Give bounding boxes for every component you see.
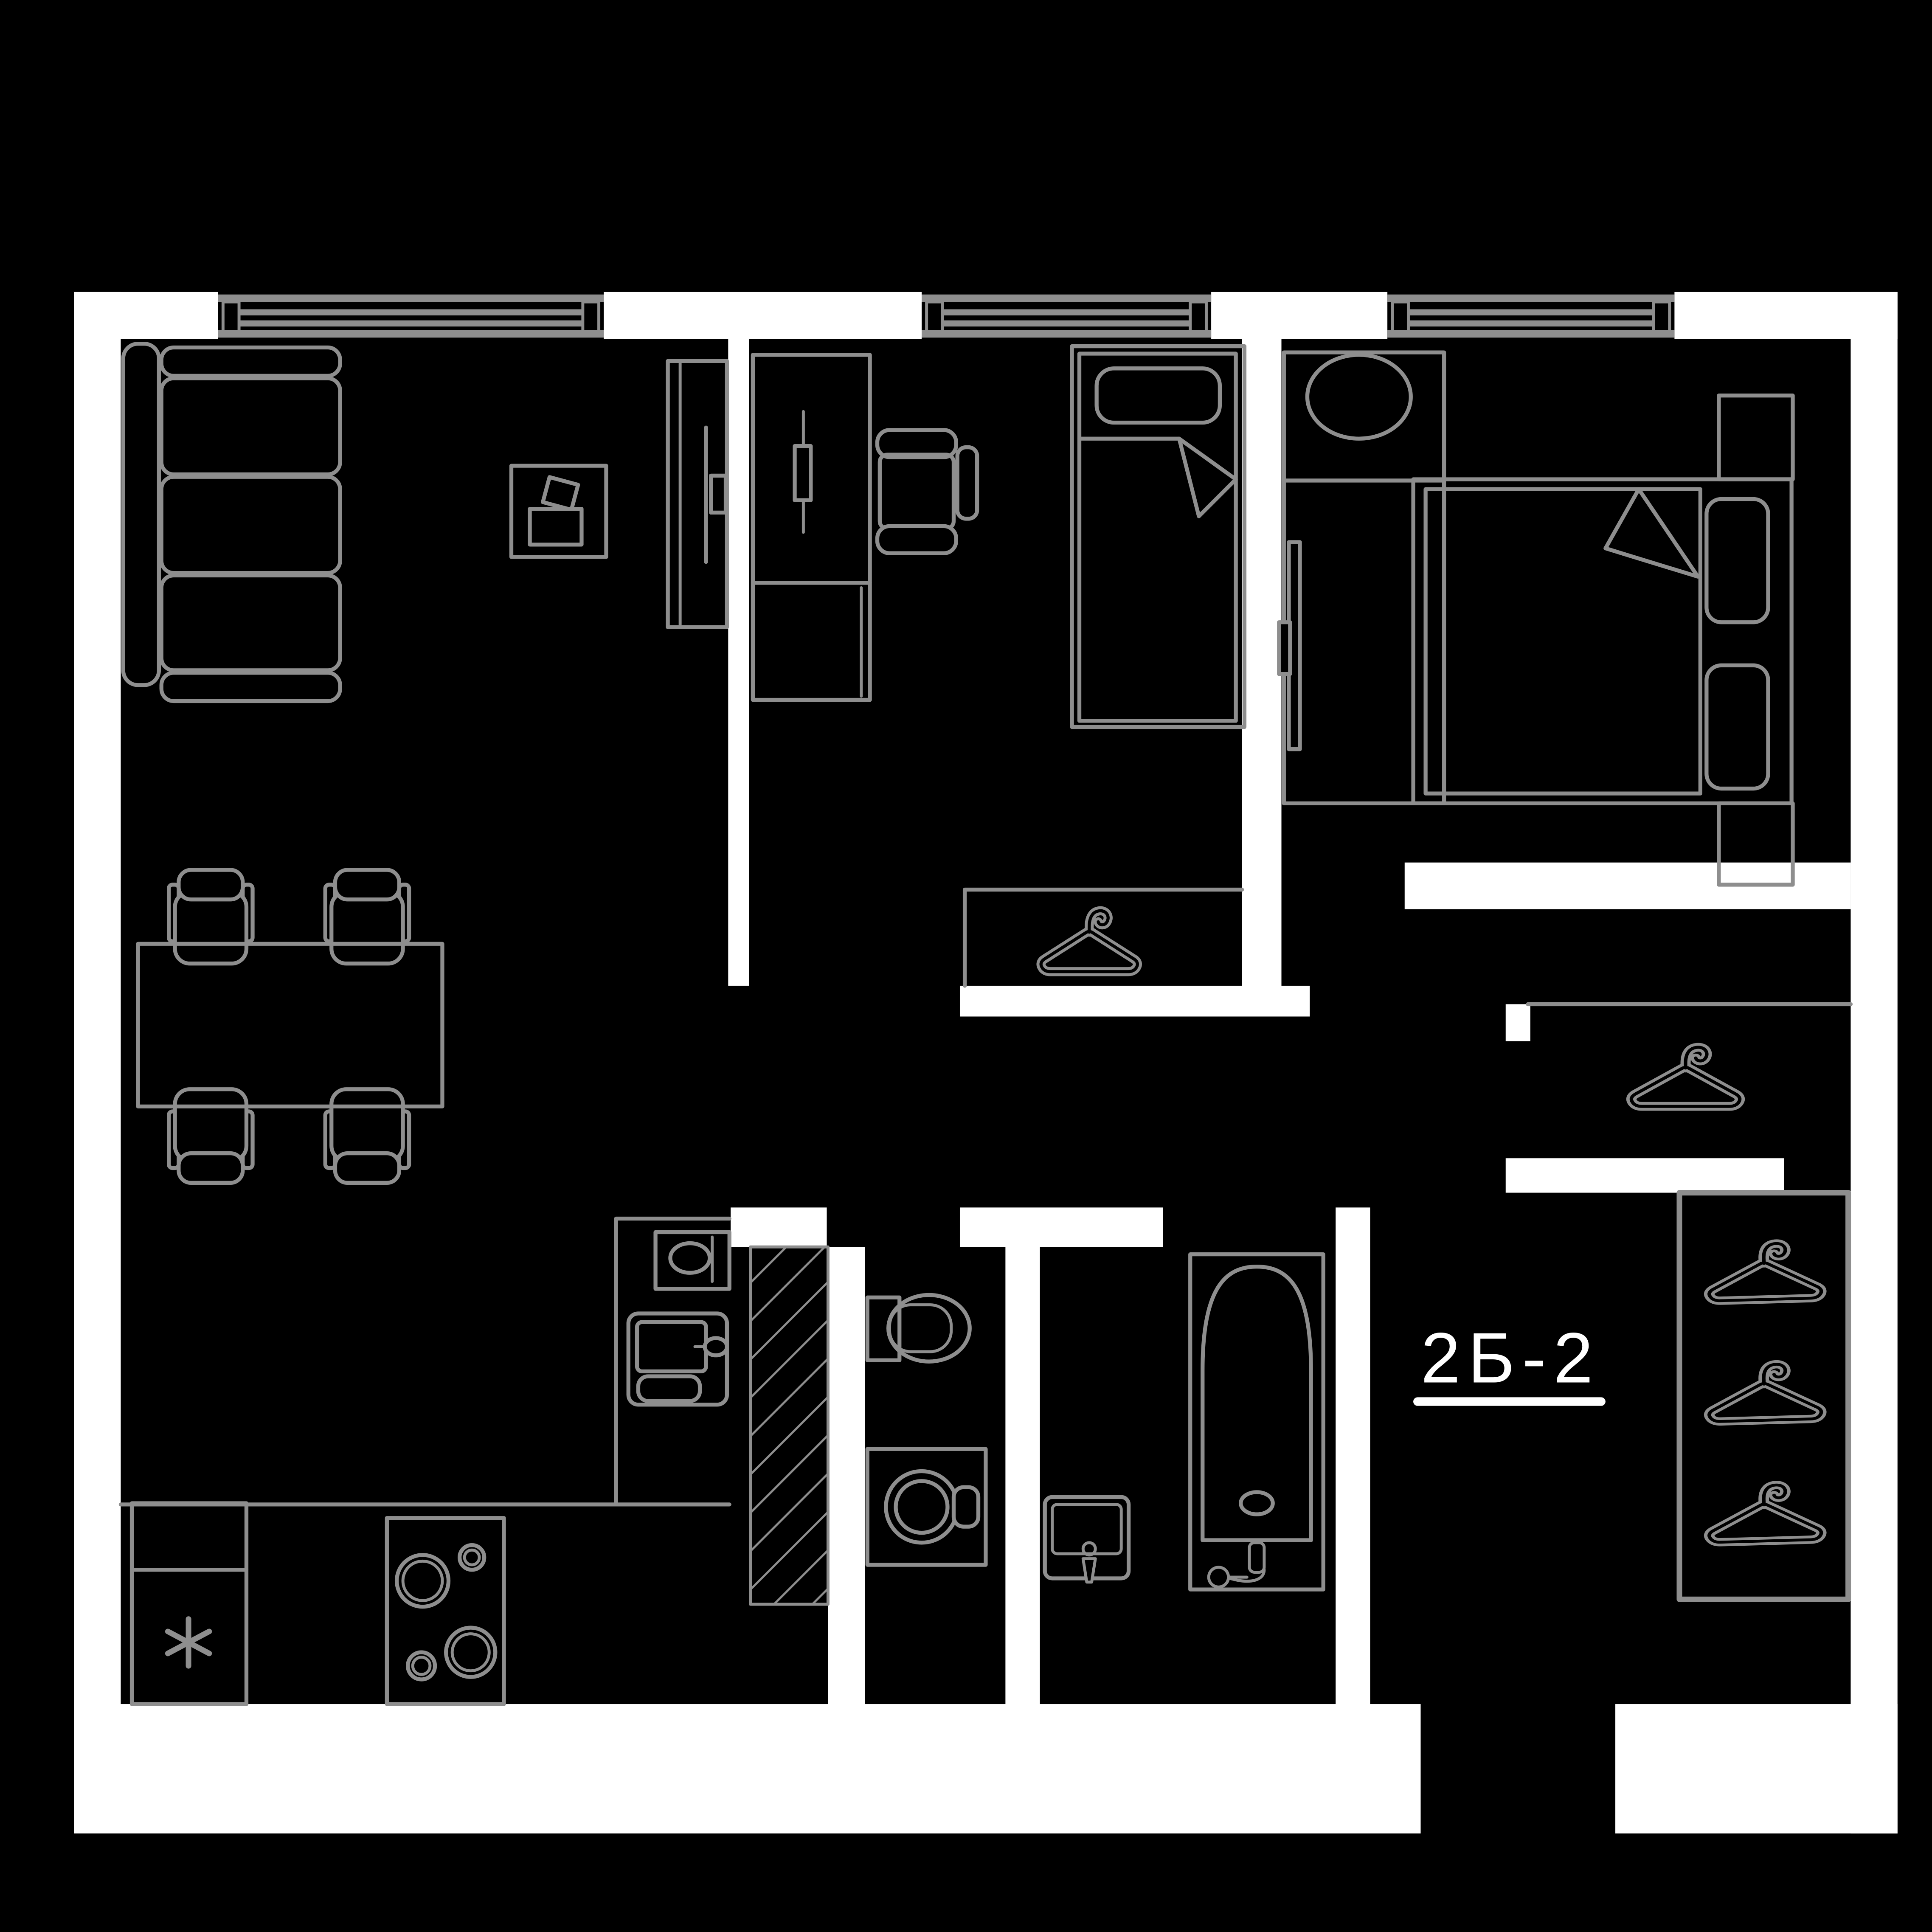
tub-faucet-icon bbox=[1249, 1543, 1264, 1572]
washing-machine bbox=[867, 1449, 986, 1565]
wall-shaft-right bbox=[828, 1247, 865, 1713]
sofa bbox=[123, 344, 340, 701]
window-bedroom1 bbox=[922, 295, 1211, 338]
drum-door-handle bbox=[953, 1487, 978, 1527]
hanger-icon bbox=[1631, 1047, 1740, 1106]
window-living bbox=[218, 295, 604, 338]
wall-bath-right bbox=[1336, 1207, 1370, 1713]
wall-top-2 bbox=[604, 292, 922, 339]
desk-chair bbox=[877, 430, 977, 553]
tv-bracket bbox=[711, 475, 726, 512]
hanger-icon bbox=[1707, 1484, 1822, 1542]
wall-top-3 bbox=[1211, 292, 1387, 339]
chair-backrest bbox=[957, 447, 977, 519]
unit-label: 2Б-2 bbox=[1421, 1318, 1600, 1398]
wall-living-bedroom1 bbox=[728, 339, 749, 986]
bathtub bbox=[1190, 1254, 1323, 1589]
windows bbox=[218, 295, 1675, 338]
double-bed bbox=[1413, 396, 1793, 885]
drain bbox=[1241, 1492, 1273, 1514]
wall-bottom-right bbox=[1615, 1704, 1898, 1834]
wall-hall-closet-bottom bbox=[1506, 1158, 1784, 1192]
wall-above-shaft bbox=[731, 1207, 827, 1247]
wardrobe-bedroom2 bbox=[1279, 352, 1444, 803]
blanket-fold bbox=[1179, 439, 1236, 516]
floor-plan: 2Б-2 bbox=[0, 0, 1932, 1932]
kitchen-cabinet-sink bbox=[628, 1313, 727, 1405]
dining-chair bbox=[325, 870, 409, 964]
wall-hall-closet-stub bbox=[1506, 1004, 1530, 1041]
pillow bbox=[1707, 665, 1768, 788]
dining-table bbox=[138, 944, 442, 1106]
dining-chair bbox=[169, 870, 253, 964]
wall-bedroom1-bedroom2 bbox=[1242, 339, 1282, 1016]
fridge bbox=[132, 1503, 247, 1704]
kitchen-sink bbox=[655, 1232, 729, 1289]
faucet-icon bbox=[705, 1338, 727, 1355]
stove bbox=[387, 1518, 504, 1704]
side-table bbox=[512, 466, 606, 557]
ceiling-lamp bbox=[1307, 355, 1411, 439]
burner bbox=[397, 1555, 449, 1607]
wall-above-wc-bath bbox=[960, 1207, 1163, 1247]
single-bed bbox=[1072, 346, 1244, 727]
toilet-tank bbox=[867, 1297, 899, 1360]
pillow bbox=[1707, 499, 1768, 622]
tv-stand bbox=[668, 361, 727, 627]
unit-label-underline bbox=[1413, 1397, 1606, 1406]
duct-shaft bbox=[751, 1247, 828, 1604]
toilet bbox=[867, 1295, 970, 1361]
floor-plan-drawing: 2Б-2 bbox=[0, 0, 1932, 1932]
wall-bottom-left bbox=[74, 1704, 1420, 1834]
hanger-icon bbox=[1707, 1363, 1822, 1422]
freezer-star-icon bbox=[168, 1619, 209, 1666]
nightstand bbox=[1719, 396, 1793, 479]
wall-wc-bath bbox=[1005, 1247, 1040, 1713]
wall-right bbox=[1850, 292, 1897, 1834]
dining-set bbox=[138, 870, 442, 1183]
hanger-icon bbox=[1041, 911, 1137, 971]
desk bbox=[753, 355, 870, 700]
dining-chair bbox=[325, 1089, 409, 1183]
dining-chair bbox=[169, 1089, 253, 1183]
closet-bedroom1 bbox=[965, 890, 1242, 986]
pillow bbox=[1097, 368, 1220, 423]
bathroom-sink bbox=[1045, 1497, 1128, 1582]
hall-closet bbox=[1528, 1004, 1850, 1106]
blanket-fold bbox=[1606, 489, 1698, 577]
monitor-icon bbox=[795, 446, 811, 501]
hanger-icon bbox=[1707, 1242, 1822, 1301]
window-bedroom2 bbox=[1387, 295, 1674, 338]
wardrobe-column bbox=[1679, 1193, 1848, 1600]
wall-left bbox=[74, 292, 121, 1713]
